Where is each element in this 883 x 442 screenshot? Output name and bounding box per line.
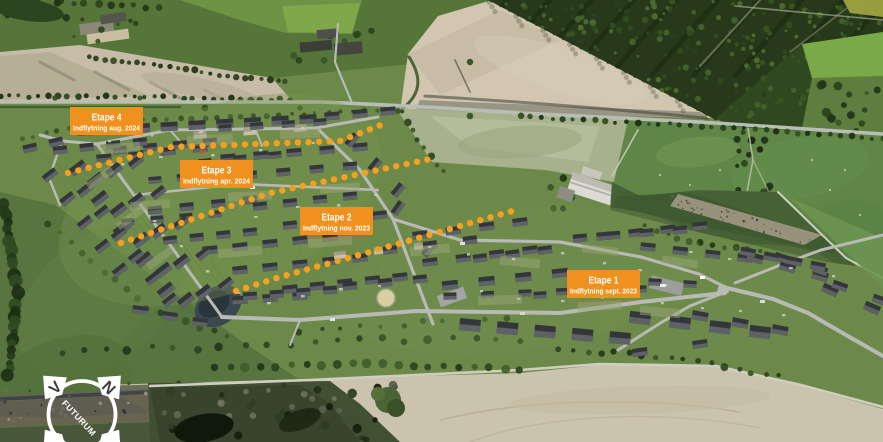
svg-text:Etape 3: Etape 3 [202,165,232,177]
svg-text:Indflytning aug. 2024: Indflytning aug. 2024 [73,126,140,133]
svg-text:Etape 2: Etape 2 [322,212,352,224]
svg-text:Indflytning nov. 2023: Indflytning nov. 2023 [303,226,370,233]
svg-text:Indflytning sept. 2023: Indflytning sept. 2023 [570,289,637,296]
svg-text:Etape 1: Etape 1 [589,275,619,287]
svg-text:Indflytning apr. 2024: Indflytning apr. 2024 [183,179,250,186]
svg-text:Etape 4: Etape 4 [92,112,122,124]
